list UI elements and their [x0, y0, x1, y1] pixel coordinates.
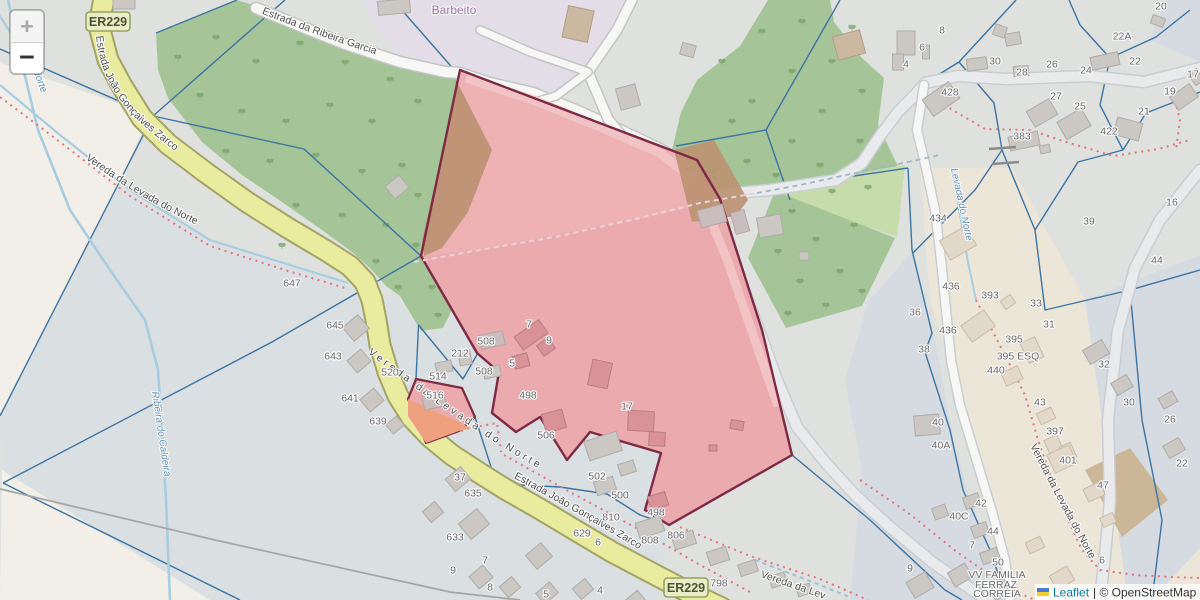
svg-text:30: 30 [1123, 397, 1135, 409]
svg-text:401: 401 [1059, 455, 1077, 467]
svg-text:798: 798 [710, 578, 728, 590]
svg-text:383: 383 [1013, 131, 1031, 143]
svg-text:Leaflet: Leaflet [1053, 586, 1090, 600]
svg-text:645: 645 [326, 320, 344, 332]
svg-text:7: 7 [482, 555, 488, 567]
svg-text:4: 4 [903, 59, 909, 71]
svg-text:641: 641 [341, 393, 359, 405]
svg-text:808: 808 [641, 535, 659, 547]
svg-text:39: 39 [1083, 216, 1095, 228]
svg-text:635: 635 [464, 488, 482, 500]
svg-text:516: 516 [426, 390, 444, 402]
svg-text:31: 31 [1043, 319, 1055, 331]
svg-text:639: 639 [369, 416, 387, 428]
svg-text:22A: 22A [1113, 31, 1132, 43]
svg-text:21: 21 [1138, 106, 1150, 118]
svg-text:CORREIA: CORREIA [973, 588, 1021, 600]
svg-text:498: 498 [647, 507, 665, 519]
svg-text:7: 7 [969, 540, 975, 552]
svg-text:6: 6 [1099, 555, 1105, 567]
svg-text:436: 436 [939, 325, 957, 337]
svg-text:38: 38 [918, 344, 930, 356]
svg-text:514: 514 [429, 371, 447, 383]
svg-text:629: 629 [573, 528, 591, 540]
svg-text:5: 5 [543, 589, 549, 600]
svg-text:44: 44 [987, 526, 999, 538]
svg-text:395: 395 [1005, 334, 1023, 346]
svg-text:436: 436 [942, 281, 960, 293]
svg-text:397: 397 [1046, 426, 1064, 438]
svg-text:6: 6 [595, 537, 601, 549]
svg-text:Barbeito: Barbeito [432, 3, 477, 17]
svg-text:33: 33 [1030, 298, 1042, 310]
svg-text:40C: 40C [949, 511, 969, 523]
svg-text:9: 9 [546, 335, 552, 347]
svg-text:393: 393 [981, 290, 999, 302]
svg-text:37: 37 [454, 472, 466, 484]
svg-text:−: − [19, 42, 35, 72]
svg-text:28: 28 [1016, 67, 1028, 79]
svg-text:428: 428 [941, 87, 959, 99]
svg-text:| © OpenStreetMap: | © OpenStreetMap [1093, 586, 1197, 600]
svg-text:20: 20 [1155, 1, 1167, 13]
svg-text:40A: 40A [932, 440, 951, 452]
svg-text:43: 43 [1034, 397, 1046, 409]
svg-text:17: 17 [621, 401, 633, 413]
svg-text:498: 498 [519, 390, 537, 402]
svg-text:508: 508 [475, 366, 493, 378]
svg-text:32: 32 [1098, 359, 1110, 371]
svg-text:6: 6 [919, 42, 925, 54]
svg-text:44: 44 [1151, 255, 1163, 267]
svg-text:7: 7 [526, 319, 532, 331]
svg-text:22: 22 [1176, 458, 1188, 470]
svg-text:+: + [20, 13, 33, 39]
svg-text:502: 502 [588, 471, 606, 483]
svg-text:5: 5 [509, 358, 515, 370]
svg-text:ER229: ER229 [89, 15, 127, 29]
svg-text:422: 422 [1100, 126, 1118, 138]
svg-text:810: 810 [602, 512, 620, 524]
svg-text:30: 30 [989, 56, 1001, 68]
svg-text:647: 647 [283, 278, 301, 290]
svg-text:9: 9 [450, 565, 456, 577]
svg-text:47: 47 [1097, 480, 1109, 492]
svg-text:36: 36 [909, 307, 921, 319]
svg-text:26: 26 [1164, 414, 1176, 426]
svg-text:506: 506 [537, 430, 555, 442]
svg-text:27: 27 [1050, 91, 1062, 103]
svg-text:434: 434 [929, 213, 947, 225]
svg-text:500: 500 [611, 490, 629, 502]
svg-text:520: 520 [381, 367, 399, 379]
svg-text:633: 633 [446, 532, 464, 544]
svg-text:16: 16 [1166, 197, 1178, 209]
svg-text:508: 508 [477, 336, 495, 348]
svg-text:4: 4 [597, 585, 603, 597]
svg-text:806: 806 [667, 530, 685, 542]
svg-text:9: 9 [907, 563, 913, 575]
svg-text:50: 50 [992, 557, 1004, 569]
svg-text:24: 24 [1080, 65, 1092, 77]
svg-text:19: 19 [1164, 86, 1176, 98]
svg-text:643: 643 [324, 351, 342, 363]
svg-text:212: 212 [451, 348, 469, 360]
svg-text:440: 440 [987, 365, 1005, 377]
svg-text:26: 26 [1046, 59, 1058, 71]
svg-text:42: 42 [975, 498, 987, 510]
svg-text:22: 22 [1129, 56, 1141, 68]
svg-text:25: 25 [1074, 101, 1086, 113]
svg-text:40: 40 [932, 417, 944, 429]
svg-text:395 ESQ: 395 ESQ [997, 351, 1040, 363]
svg-text:8: 8 [939, 25, 945, 37]
svg-text:ER229: ER229 [667, 581, 705, 595]
svg-text:8: 8 [487, 582, 493, 594]
svg-text:17: 17 [1187, 69, 1199, 81]
